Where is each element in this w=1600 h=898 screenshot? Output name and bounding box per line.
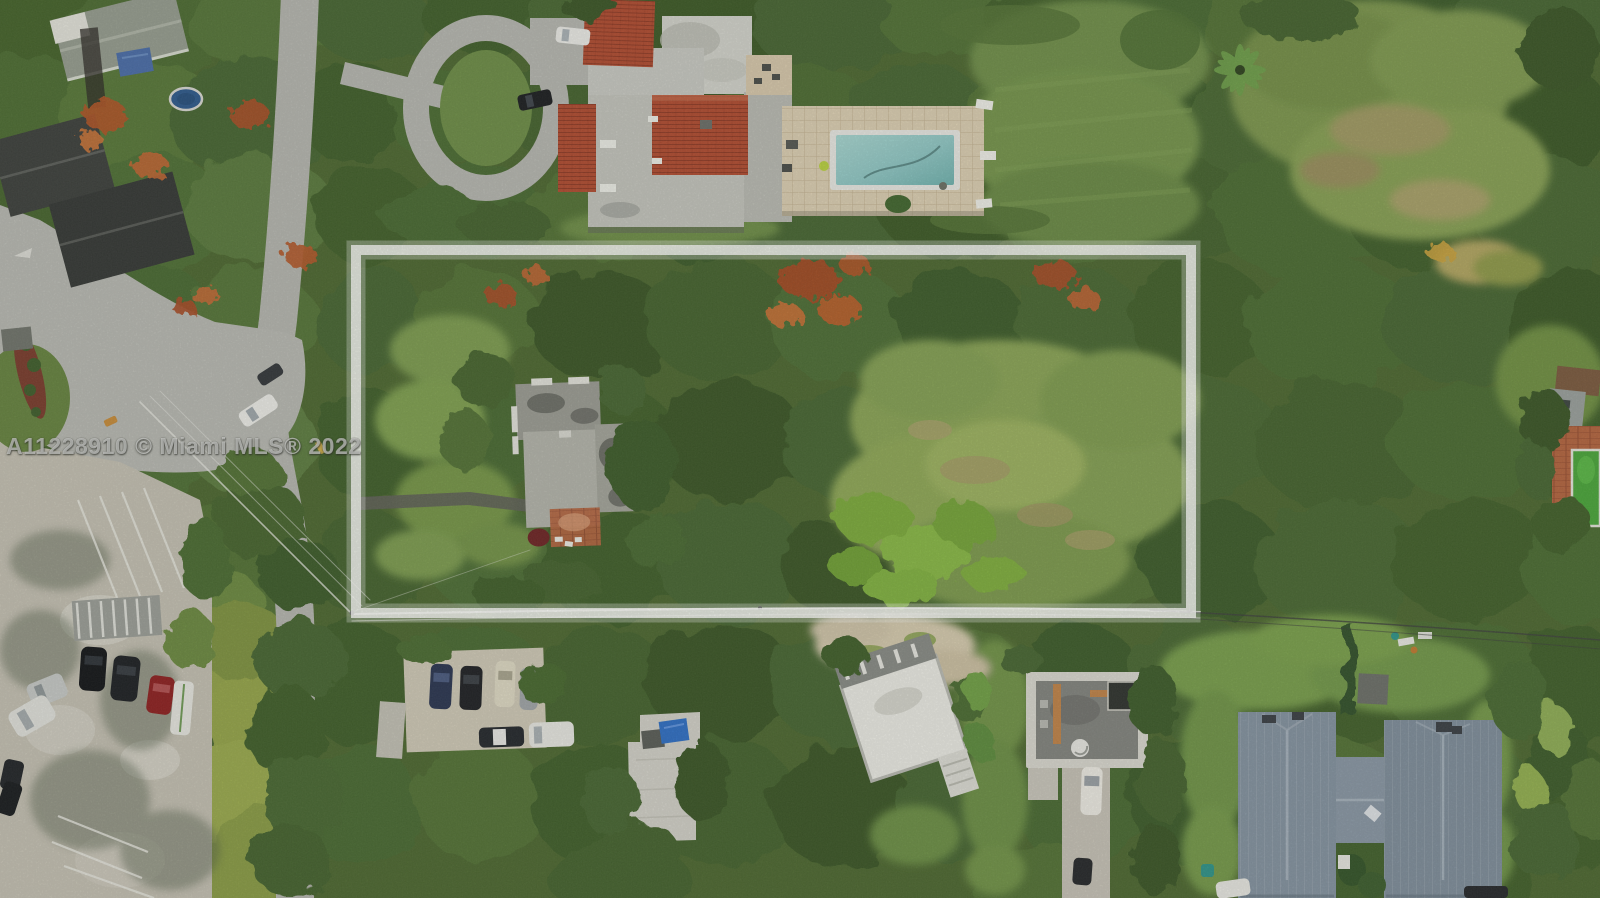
- aerial-photo: A11228910 © Miami MLS® 2022: [0, 0, 1600, 898]
- aerial-photo-canvas: [0, 0, 1600, 898]
- photo-grain: [0, 0, 1600, 898]
